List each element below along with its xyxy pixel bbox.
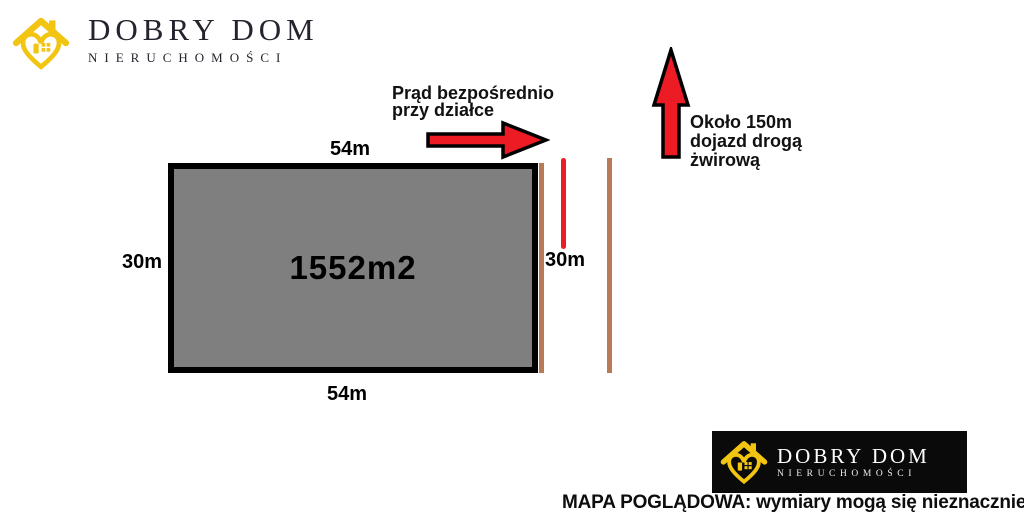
brand-subtitle: NIERUCHOMOŚCI — [88, 50, 319, 66]
brand-title: DOBRY DOM — [88, 14, 319, 47]
access-note: Około 150m dojazd drogą żwirową — [690, 113, 802, 170]
access-note-line2: dojazd drogą — [690, 132, 802, 151]
road-line-near — [539, 163, 544, 373]
map-disclaimer: MAPA POGLĄDOWA: wymiary mogą się nieznac… — [562, 492, 1024, 514]
brand-logo-top: DOBRY DOM NIERUCHOMOŚCI — [12, 8, 319, 78]
dimension-bottom: 54m — [327, 383, 367, 406]
access-note-line1: Około 150m — [690, 113, 802, 132]
plot-overview-map: DOBRY DOM NIERUCHOMOŚCI Prąd bezpośredni… — [0, 0, 1024, 516]
house-heart-icon — [720, 437, 768, 487]
dimension-right: 30m — [545, 249, 585, 272]
brand-title: DOBRY DOM — [777, 445, 930, 467]
brand-text: DOBRY DOM NIERUCHOMOŚCI — [88, 14, 319, 66]
up-arrow-icon — [649, 47, 693, 161]
access-note-line3: żwirową — [690, 151, 802, 170]
brand-text: DOBRY DOM NIERUCHOMOŚCI — [777, 445, 930, 479]
house-heart-icon — [12, 8, 70, 78]
parcel-rect: 1552m2 — [168, 163, 538, 373]
electricity-note: Prąd bezpośrednio przy działce — [392, 85, 554, 119]
right-arrow-icon — [425, 119, 550, 161]
brand-subtitle: NIERUCHOMOŚCI — [777, 469, 930, 479]
electricity-note-line2: przy działce — [392, 102, 554, 119]
brand-logo-bottom: DOBRY DOM NIERUCHOMOŚCI — [712, 431, 967, 493]
dimension-left: 30m — [112, 251, 162, 274]
dimension-top: 54m — [330, 138, 370, 161]
road-line-far — [607, 158, 612, 373]
parcel-area-label: 1552m2 — [289, 249, 416, 287]
electricity-line — [561, 158, 566, 249]
